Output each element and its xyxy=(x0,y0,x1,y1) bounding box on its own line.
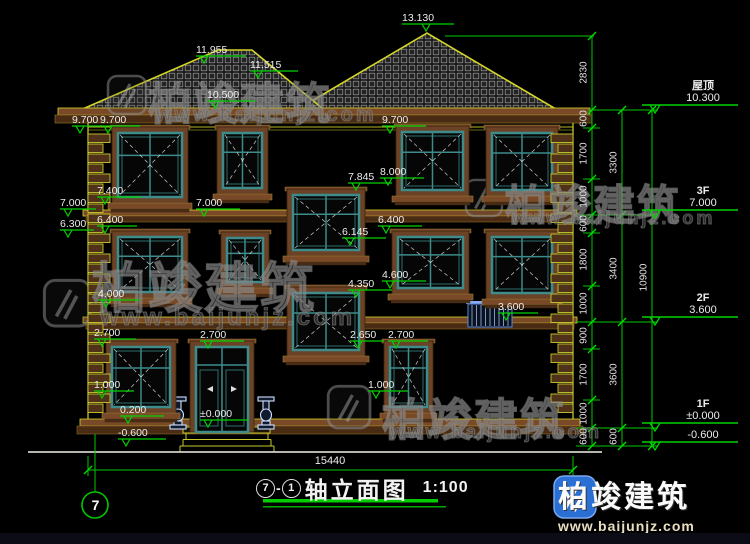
floor-level-marker: -0.600 xyxy=(642,429,738,454)
elevation-marker: 13.130 xyxy=(402,13,454,32)
dim-chain-label-inner: 1700 xyxy=(579,343,590,407)
elevation-marker: 9.700 xyxy=(382,115,426,134)
bottom-bar xyxy=(0,533,750,544)
elevation-marker: 6.400 xyxy=(97,215,137,234)
floor-level-marker: 2F3.600 xyxy=(642,292,738,329)
elevation-marker: 6.145 xyxy=(342,227,386,246)
floor-band-2f xyxy=(83,317,577,329)
axis-bubble-number: 7 xyxy=(88,497,103,513)
elevation-marker: 11.955 xyxy=(196,45,246,64)
elevation-marker: 11.515 xyxy=(250,60,298,79)
watermark-text: 柏竣建筑 xyxy=(148,68,332,132)
dim-chain-label-inner: 1000 xyxy=(579,382,590,446)
entrance-door xyxy=(188,339,256,432)
elevation-marker: 9.700 xyxy=(72,115,102,134)
dim-chain-label-middle: 3400 xyxy=(609,237,620,301)
quoins-left xyxy=(88,134,110,413)
dim-chain-label-outer: 10900 xyxy=(639,246,650,310)
dim-chain-label-inner: 600 xyxy=(579,405,590,469)
window-stair-upper xyxy=(283,187,369,265)
elevation-marker: 2.700 xyxy=(388,330,428,349)
elevation-marker: 7.000 xyxy=(60,198,96,217)
elevation-marker: 9.700 xyxy=(100,115,140,134)
window-1f-small xyxy=(380,339,437,422)
brand-logo: 柏竣建筑 www.baijunjz.com xyxy=(552,472,695,534)
window-3f-left xyxy=(108,125,192,212)
elevation-marker: -0.600 xyxy=(118,428,166,447)
elevation-marker: 10.500 xyxy=(207,90,255,109)
left-hip-roof xyxy=(62,50,334,118)
watermark-url: www.baijunjz.com xyxy=(100,304,355,332)
title-scale: 1:100 xyxy=(423,479,469,497)
elevation-marker: 8.000 xyxy=(380,167,424,186)
elevation-marker: 2.700 xyxy=(94,328,136,347)
floor-level-marker: 1F±0.000 xyxy=(642,398,738,435)
dim-chain-label-inner: 1000 xyxy=(579,165,590,229)
door-swing-arrow-left xyxy=(207,386,213,392)
elevation-marker: 7.000 xyxy=(196,198,240,217)
watermark-url: www.baijunjz.com xyxy=(512,208,715,229)
title-axis-separator: - xyxy=(276,480,281,496)
elevation-marker: 7.845 xyxy=(348,172,392,191)
dim-chain-label-middle: 600 xyxy=(609,405,620,469)
floor-level-marker: 屋顶10.300 xyxy=(642,80,738,117)
window-1f-left xyxy=(102,339,180,422)
dim-chain-label-inner: 1000 xyxy=(579,272,590,336)
watermark-text: 柏竣建筑 xyxy=(505,172,681,233)
window-2f-left2 xyxy=(217,230,273,297)
wall-outline xyxy=(88,123,573,434)
dim-chain-label-inner: 600 xyxy=(579,87,590,151)
elevation-marker: 4.600 xyxy=(382,270,426,289)
title-text: 轴立面图 xyxy=(305,471,409,505)
window-2f-right xyxy=(482,229,562,308)
elevation-marker: 0.200 xyxy=(120,405,164,424)
dim-chain-label-inner: 900 xyxy=(579,304,590,368)
elevation-marker: 3.600 xyxy=(498,302,538,321)
title-axis-start-bubble: 7 xyxy=(256,479,275,498)
window-2f-mid xyxy=(388,229,473,303)
elevation-marker: 6.400 xyxy=(378,215,422,234)
dimension-ticks xyxy=(84,32,656,474)
dim-chain-label-inner: 2830 xyxy=(579,41,590,105)
dim-chain-label-middle: 3600 xyxy=(609,343,620,407)
title-axis-end-bubble: 1 xyxy=(282,479,301,498)
dim-chain-label-inner: 1700 xyxy=(579,122,590,186)
porch-baluster-left xyxy=(170,397,186,429)
watermark-text: 柏竣建筑 xyxy=(382,384,566,448)
elevation-marker: 7.400 xyxy=(97,186,141,205)
main-hip-roof xyxy=(283,33,571,118)
window-3f-right xyxy=(482,125,562,205)
window-stair-lower xyxy=(283,285,369,365)
porch-baluster-right xyxy=(258,397,274,429)
porch-steps xyxy=(177,427,277,452)
drawing-title: 7 - 1 轴立面图 1:100 xyxy=(256,471,469,505)
window-2f-left xyxy=(108,229,192,307)
cad-elevation-drawing: 柏竣建筑www.baijunjz.com柏竣建筑www.baijunjz.com… xyxy=(0,0,750,544)
base-band xyxy=(77,419,583,434)
marker-layer: 13.13011.95511.51510.5009.7009.7009.7008… xyxy=(0,0,750,544)
door-swing-arrow-right xyxy=(231,386,237,392)
elevation-linework xyxy=(0,0,750,544)
elevation-marker: 4.000 xyxy=(98,289,140,308)
eave-cornice xyxy=(55,108,592,130)
elevation-marker: 1.000 xyxy=(368,380,408,399)
width-dimension-label: 15440 xyxy=(295,455,365,467)
dim-chain-label-inner: 1800 xyxy=(579,228,590,292)
watermark-layer: 柏竣建筑www.baijunjz.com柏竣建筑www.baijunjz.com… xyxy=(0,0,750,544)
elevation-marker: 2.650 xyxy=(350,330,384,349)
elevation-marker: 2.700 xyxy=(200,330,244,349)
elevation-marker: 4.350 xyxy=(348,279,392,298)
window-3f-left2 xyxy=(213,125,272,203)
dim-chain-label-middle: 3300 xyxy=(609,131,620,195)
elevation-marker: ±0.000 xyxy=(200,409,248,428)
brand-logo-text: 柏竣建筑 xyxy=(558,472,695,516)
floor-level-marker: 3F7.000 xyxy=(642,185,738,222)
watermark-text: 柏竣建筑 xyxy=(92,244,316,323)
dim-chain-label-inner: 600 xyxy=(579,192,590,256)
watermark-icon xyxy=(44,76,502,428)
floor-band-3f xyxy=(83,210,577,222)
watermark-url: www.baijunjz.com xyxy=(390,422,602,444)
window-3f-mid xyxy=(392,124,473,205)
elevation-marker: 1.000 xyxy=(94,380,134,399)
watermark-url: www.baijunjz.com xyxy=(156,104,377,127)
quoins-right xyxy=(551,134,573,413)
elevation-marker: 6.300 xyxy=(60,219,94,238)
brand-logo-url: www.baijunjz.com xyxy=(558,518,695,534)
balcony-railing xyxy=(466,301,514,327)
dimension-chains xyxy=(82,36,658,518)
